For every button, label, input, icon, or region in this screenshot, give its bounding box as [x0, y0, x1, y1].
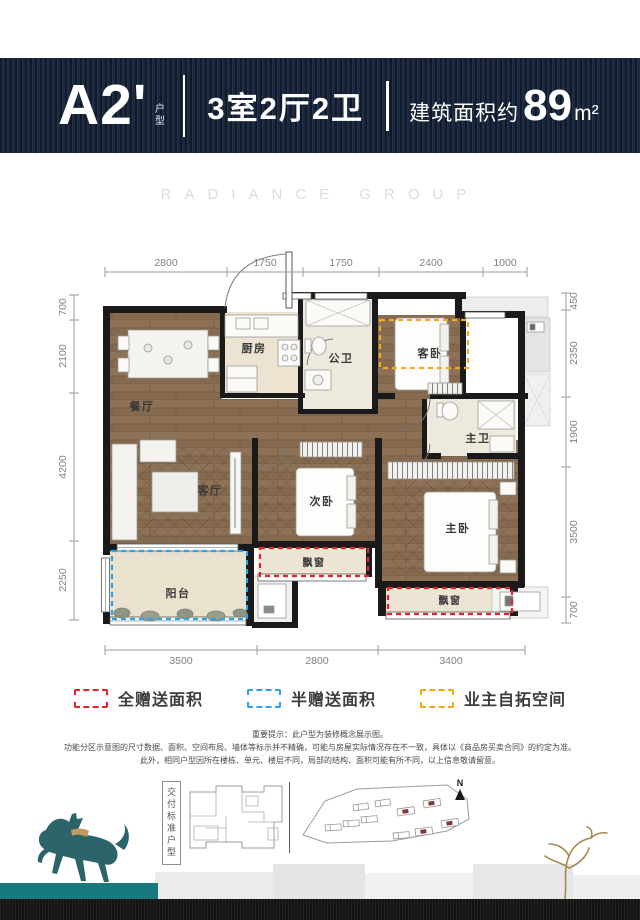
header-band: A2' 户型 3室2厅2卫 建筑面积约 89 m²	[0, 58, 640, 153]
tree-branch-icon	[535, 826, 615, 900]
footer-divider	[289, 782, 290, 853]
dim-top-1: 1750	[253, 257, 277, 269]
room-label-master-bedroom: 主卧	[446, 521, 471, 535]
dim-left-1: 2100	[57, 344, 69, 368]
room-label-bay-window: 飘窗	[303, 556, 326, 569]
dim-right-0: 450	[568, 292, 580, 310]
dim-top-2: 1750	[329, 257, 353, 269]
tv-console	[230, 452, 241, 534]
horse-statue	[25, 808, 137, 888]
dim-top-3: 2400	[419, 257, 443, 269]
dim-left-3: 2250	[57, 568, 69, 592]
dim-right-1: 2350	[568, 341, 580, 365]
wardrobe	[388, 462, 514, 479]
full-gift-swatch	[74, 689, 108, 708]
dim-left-0: 700	[57, 298, 69, 316]
legend-item-full-gift: 全赠送面积	[74, 686, 203, 710]
footer-black-band	[0, 899, 640, 920]
area-block: 建筑面积约 89 m²	[409, 84, 598, 128]
layout-summary: 3室2厅2卫	[207, 83, 364, 128]
owner-expand-swatch	[420, 689, 454, 708]
mini-plan-thumbnail	[186, 782, 286, 854]
header-content: A2' 户型 3室2厅2卫 建筑面积约 89 m²	[58, 58, 599, 153]
area-prefix: 建筑面积约	[409, 97, 519, 127]
header-divider-thick	[386, 81, 389, 131]
dim-left-2: 4200	[57, 455, 69, 479]
disclaimer-line: 重要提示：此户型为装修概念展示图。	[30, 728, 610, 741]
room-label-dining: 餐厅	[129, 399, 155, 413]
north-arrow-icon: N	[452, 779, 468, 800]
dim-right-4: 700	[568, 601, 580, 619]
gray-block	[155, 872, 273, 899]
toilet	[442, 402, 458, 420]
room-label-kitchen: 厨房	[242, 341, 267, 355]
legend-label: 半赠送面积	[291, 686, 376, 710]
ac-unit	[527, 322, 544, 332]
dining-table	[128, 330, 208, 378]
highlighted-building	[415, 827, 433, 836]
room-label-public-bath: 公卫	[329, 352, 354, 365]
sofa	[112, 444, 137, 540]
floor-plan: 餐厅 厨房 公卫 客卧 主卫 客厅 次卧 主卧 阳台 飘窗 飘窗	[0, 245, 640, 680]
floorplan-flyer: A2' 户型 3室2厅2卫 建筑面积约 89 m² RADIANCE GROUP	[0, 0, 640, 920]
half-gift-swatch	[247, 689, 281, 708]
dim-bottom-2: 3400	[439, 655, 463, 667]
disclaimer-line: 功能分区示意图的尺寸数据、面积、空间布局、墙体等标示并不精确，可能与房屋实际情况…	[30, 741, 610, 754]
legend-item-owner-expand: 业主自拓空间	[420, 686, 566, 710]
legend-label: 业主自拓空间	[464, 686, 566, 710]
room-label-master-bath: 主卫	[466, 431, 491, 445]
dim-bottom-0: 3500	[169, 655, 193, 667]
dim-top-0: 2800	[154, 257, 178, 269]
north-label: N	[452, 779, 468, 788]
legend-item-half-gift: 半赠送面积	[247, 686, 376, 710]
header-divider-thin	[183, 75, 185, 137]
brand-watermark: RADIANCE GROUP	[0, 186, 640, 203]
gray-block	[365, 873, 473, 899]
dim-right-2: 1900	[568, 420, 580, 444]
room-label-guest-bedroom: 客卧	[417, 346, 443, 360]
legend-label: 全赠送面积	[118, 686, 203, 710]
dim-top-4: 1000	[493, 257, 517, 269]
area-unit: m²	[574, 102, 599, 126]
unit-type-label: 户型	[150, 103, 165, 127]
room-label-living: 客厅	[197, 483, 223, 497]
room-label-balcony: 阳台	[166, 586, 191, 600]
disclaimer: 重要提示：此户型为装修概念展示图。 功能分区示意图的尺寸数据、面积、空间布局、墙…	[30, 728, 610, 768]
disclaimer-line: 此外，相同户型因所在楼栋、单元、楼层不同，局部的结构、面积可能有所不同，以上信息…	[30, 754, 610, 767]
dim-right-3: 3500	[568, 520, 580, 544]
room-label-bay-window: 飘窗	[439, 594, 462, 607]
gray-block	[273, 864, 365, 899]
fridge	[227, 366, 257, 392]
dim-bottom-1: 2800	[305, 655, 329, 667]
wardrobe	[300, 442, 362, 457]
legend: 全赠送面积 半赠送面积 业主自拓空间	[0, 686, 640, 710]
coffee-table	[152, 472, 198, 512]
standard-unit-tag: 交付标准户型	[162, 781, 181, 865]
room-label-second-bedroom: 次卧	[310, 494, 335, 508]
toilet	[312, 337, 326, 355]
unit-code: A2'	[58, 77, 147, 134]
stove	[278, 340, 300, 366]
area-value: 89	[523, 84, 572, 128]
